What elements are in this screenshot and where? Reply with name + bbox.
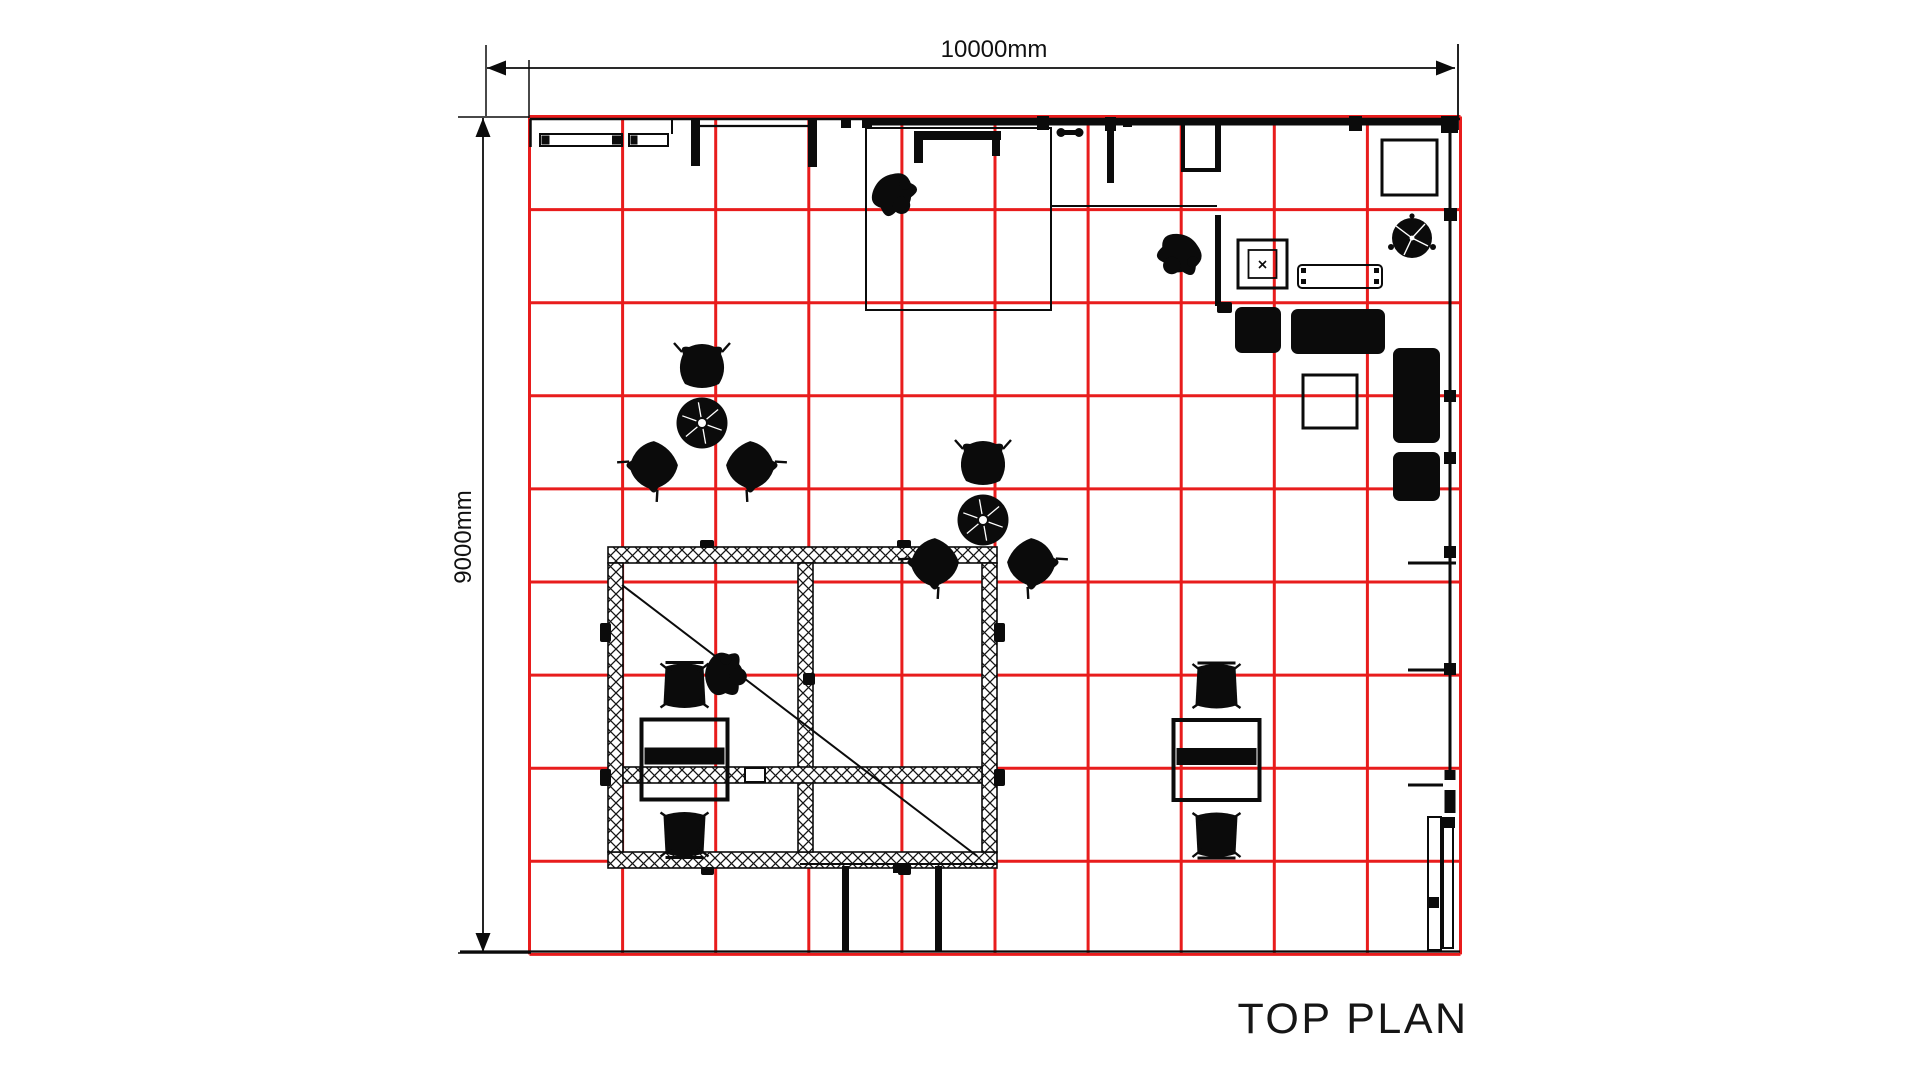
wall-block (1445, 790, 1456, 813)
plan-shapes (458, 44, 1460, 953)
dim-arrow-up (476, 118, 491, 137)
wall-block (1444, 452, 1456, 464)
door-block (1442, 817, 1455, 828)
door-pivot-cap (1057, 128, 1066, 137)
wall-post (808, 119, 817, 167)
wall-block (1123, 119, 1132, 127)
door-post (842, 866, 849, 951)
sofa (1291, 309, 1385, 354)
door-post (935, 866, 942, 951)
dim-arrow-left (487, 61, 506, 76)
truss-tab (803, 673, 815, 685)
door-leaf (1428, 817, 1441, 950)
left-dimension-label: 9000mm (450, 490, 477, 583)
round-table-set (617, 343, 787, 502)
truss-tab (600, 769, 611, 786)
plant-nub (1430, 244, 1436, 250)
plant-nub (1388, 244, 1394, 250)
bracket (914, 131, 1001, 140)
person (703, 651, 748, 698)
truss-beam (982, 563, 997, 852)
wall-block (1444, 208, 1457, 221)
door-leaf (1443, 820, 1453, 948)
pedestal-mark (1259, 261, 1266, 268)
wall-block (1444, 663, 1456, 675)
sofa (1393, 452, 1440, 501)
bench-leg (1301, 279, 1306, 284)
frame-block (893, 864, 911, 873)
plant-nub (1409, 213, 1414, 218)
top-dimension-label: 10000mm (941, 36, 1048, 63)
truss-tab (994, 769, 1005, 786)
wall-block (1444, 390, 1456, 402)
bench-leg (1301, 268, 1306, 273)
bench-leg (1374, 268, 1379, 273)
truss-tab (600, 623, 611, 642)
desk-set (1174, 663, 1260, 858)
plant-center (1410, 236, 1415, 241)
sofa (1393, 348, 1440, 443)
room-outline (866, 128, 1051, 310)
wall-block (1445, 770, 1456, 780)
wall-post (691, 119, 700, 166)
person (1150, 227, 1208, 285)
truss-tab (994, 623, 1005, 642)
truss-tab (701, 867, 714, 875)
truss-beam (608, 563, 623, 852)
door-pivot-cap (1075, 128, 1084, 137)
top-plan-page: 10000mm 9000mm TOP PLAN (0, 0, 1920, 1080)
bracket-leg (914, 131, 923, 163)
counter-end (542, 136, 550, 145)
wall-block (841, 118, 851, 128)
truss-tab (897, 540, 911, 548)
sofa-arm (1217, 302, 1232, 313)
counter-end (631, 136, 638, 145)
sofa (1235, 307, 1281, 353)
wall-post (1107, 122, 1114, 183)
wall-block (1444, 546, 1456, 558)
truss-tab (700, 540, 714, 548)
dim-arrow-down (476, 933, 491, 952)
square-table (1382, 140, 1437, 195)
coffee-table (1303, 375, 1357, 428)
corner-block (1441, 116, 1458, 133)
bench (1298, 265, 1382, 288)
truss-beam (608, 852, 997, 868)
bracket-leg (992, 131, 1000, 156)
floor-plan-canvas: 10000mm 9000mm TOP PLAN (0, 0, 1920, 1080)
bench-leg (1374, 279, 1379, 284)
dim-arrow-right (1436, 61, 1455, 76)
truss-beam (798, 563, 813, 852)
door-block (1427, 897, 1439, 908)
counter-end (612, 136, 621, 145)
counter (540, 134, 622, 146)
wall-block (1349, 116, 1362, 131)
truss-beam (623, 767, 982, 783)
truss-plate (745, 768, 765, 782)
person (865, 165, 925, 225)
plan-title: TOP PLAN (1237, 995, 1468, 1043)
